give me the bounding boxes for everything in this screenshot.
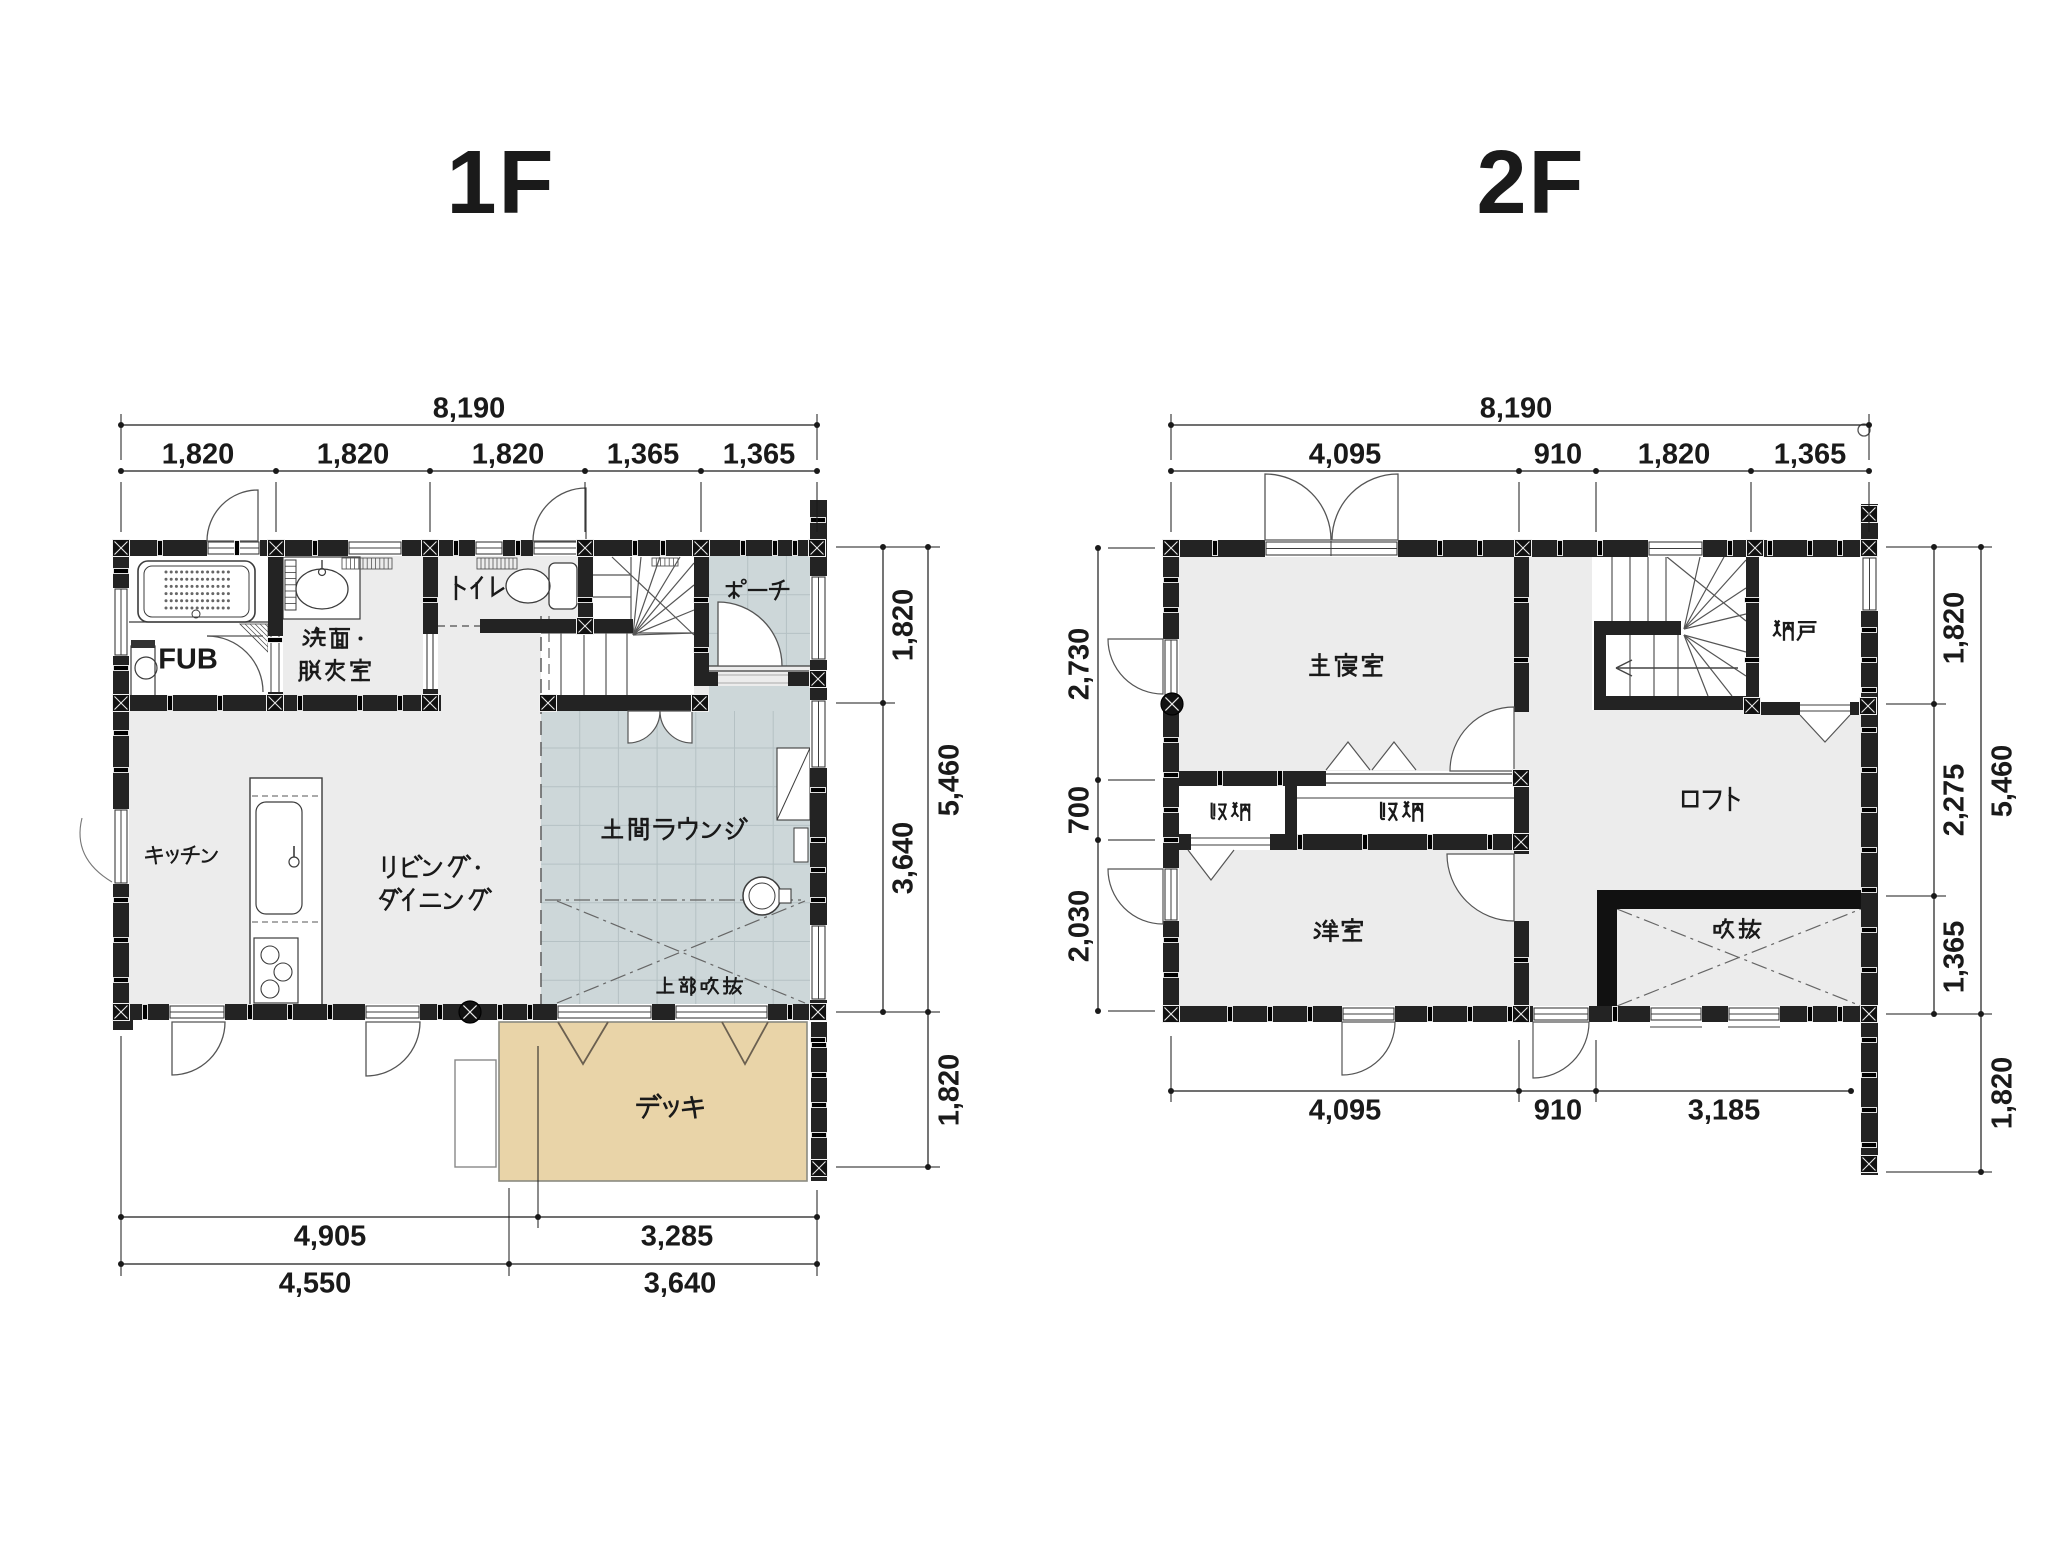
svg-text:910: 910 bbox=[1534, 439, 1582, 471]
svg-text:1,820: 1,820 bbox=[1939, 592, 1971, 665]
svg-text:2,730: 2,730 bbox=[1064, 628, 1096, 701]
svg-text:1,820: 1,820 bbox=[317, 439, 390, 471]
svg-text:4,905: 4,905 bbox=[294, 1221, 367, 1253]
svg-text:3,285: 3,285 bbox=[641, 1221, 714, 1253]
svg-text:1,365: 1,365 bbox=[723, 439, 796, 471]
svg-text:1,820: 1,820 bbox=[1987, 1057, 2019, 1130]
svg-text:2F: 2F bbox=[1476, 133, 1585, 233]
svg-text:1F: 1F bbox=[446, 133, 555, 233]
svg-text:8,190: 8,190 bbox=[1480, 393, 1553, 425]
svg-text:1,820: 1,820 bbox=[162, 439, 235, 471]
svg-text:1,820: 1,820 bbox=[934, 1054, 966, 1127]
svg-text:1,820: 1,820 bbox=[888, 589, 920, 662]
svg-text:1,365: 1,365 bbox=[607, 439, 680, 471]
svg-text:2,275: 2,275 bbox=[1939, 764, 1971, 837]
svg-text:8,190: 8,190 bbox=[433, 393, 506, 425]
svg-text:700: 700 bbox=[1064, 786, 1096, 834]
svg-text:2,030: 2,030 bbox=[1064, 890, 1096, 963]
svg-text:910: 910 bbox=[1534, 1095, 1582, 1127]
svg-text:5,460: 5,460 bbox=[1987, 745, 2019, 818]
svg-text:1,365: 1,365 bbox=[1939, 921, 1971, 994]
svg-text:3,640: 3,640 bbox=[644, 1268, 717, 1300]
svg-text:4,550: 4,550 bbox=[279, 1268, 352, 1300]
svg-text:3,640: 3,640 bbox=[888, 822, 920, 895]
svg-text:3,185: 3,185 bbox=[1688, 1095, 1761, 1127]
svg-text:1,820: 1,820 bbox=[472, 439, 545, 471]
svg-text:4,095: 4,095 bbox=[1309, 1095, 1382, 1127]
svg-text:FUB: FUB bbox=[158, 644, 218, 676]
svg-text:1,820: 1,820 bbox=[1638, 439, 1711, 471]
svg-text:4,095: 4,095 bbox=[1309, 439, 1382, 471]
svg-text:1,365: 1,365 bbox=[1774, 439, 1847, 471]
svg-text:5,460: 5,460 bbox=[934, 744, 966, 817]
